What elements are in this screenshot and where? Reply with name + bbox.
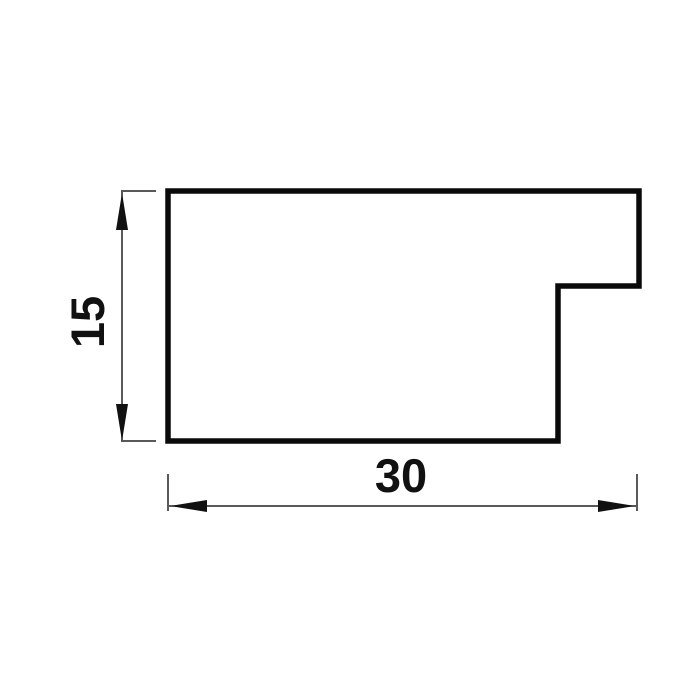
drawing-canvas: 15 30	[0, 0, 700, 700]
width-dimension-label: 30	[375, 449, 427, 502]
drawing-background	[0, 0, 700, 700]
height-dimension-label: 15	[61, 296, 114, 348]
height-dimension-label-group: 15	[61, 296, 114, 348]
profile-drawing-svg: 15 30	[0, 0, 700, 700]
